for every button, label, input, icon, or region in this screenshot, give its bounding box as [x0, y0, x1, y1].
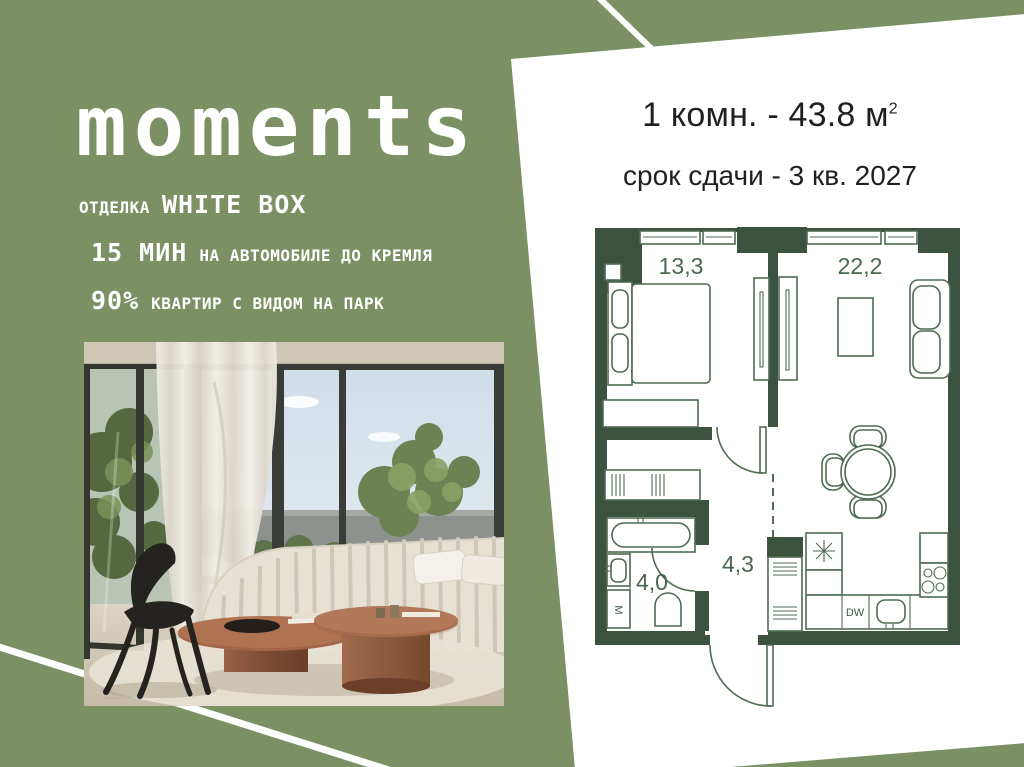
- room-area-label-bathroom: 4,0: [636, 569, 668, 595]
- brand-logo: moments: [76, 84, 479, 168]
- feature-park-view-value: 90%: [91, 286, 139, 315]
- feature-drive-time-label: НА АВТОМОБИЛЕ ДО КРЕМЛЯ: [199, 246, 432, 265]
- room-area-label-bedroom: 13,3: [659, 253, 704, 279]
- toilet-icon: [655, 593, 681, 626]
- feature-finish-value: WHITE BOX: [162, 190, 306, 219]
- room-area-label-hallway: 4,3: [722, 551, 754, 577]
- bathtub-icon: [607, 514, 695, 552]
- stove-icon: [920, 563, 948, 597]
- dresser-icon: [605, 470, 700, 500]
- apartment-type-area: 1 комн. - 43.8 м: [642, 96, 889, 134]
- sink-kitchen-icon: [877, 600, 905, 623]
- apartment-headline: 1 комн. - 43.8 м2: [530, 96, 1010, 135]
- entry-door: [710, 645, 773, 706]
- room-area-label-living: 22,2: [838, 253, 883, 279]
- sqm-superscript: 2: [889, 101, 898, 118]
- feature-park-view: 90% КВАРТИР С ВИДОМ НА ПАРК: [79, 286, 519, 315]
- bed-icon: [605, 264, 710, 385]
- sofa-icon: [910, 280, 950, 378]
- floor-plan: M: [588, 222, 968, 722]
- desk-icon: [603, 400, 698, 427]
- wardrobe-bedroom-icon: [754, 278, 769, 380]
- sink-bathroom-icon: [604, 554, 630, 586]
- feature-drive-time: 15 МИН НА АВТОМОБИЛЕ ДО КРЕМЛЯ: [79, 238, 519, 267]
- feature-list: ОТДЕЛКА WHITE BOX 15 МИН НА АВТОМОБИЛЕ Д…: [79, 190, 519, 334]
- dining-table-icon: [822, 426, 895, 518]
- light-star-icon: [813, 540, 835, 562]
- feature-drive-time-value: 15 МИН: [91, 238, 187, 267]
- real-estate-ad-banner: moments ОТДЕЛКА WHITE BOX 15 МИН НА АВТО…: [0, 0, 1024, 767]
- feature-finish: ОТДЕЛКА WHITE BOX: [79, 190, 519, 219]
- svg-text:M: M: [612, 605, 624, 614]
- coffee-table-icon: [838, 298, 873, 356]
- washing-machine-icon: M: [607, 590, 630, 628]
- completion-date: срок сдачи - 3 кв. 2027: [530, 160, 1010, 192]
- wardrobe-living-icon: [779, 277, 797, 380]
- dishwasher-label: DW: [846, 607, 865, 619]
- feature-park-view-label: КВАРТИР С ВИДОМ НА ПАРК: [151, 294, 384, 313]
- feature-finish-label: ОТДЕЛКА: [79, 198, 150, 217]
- bedroom-door: [717, 427, 766, 473]
